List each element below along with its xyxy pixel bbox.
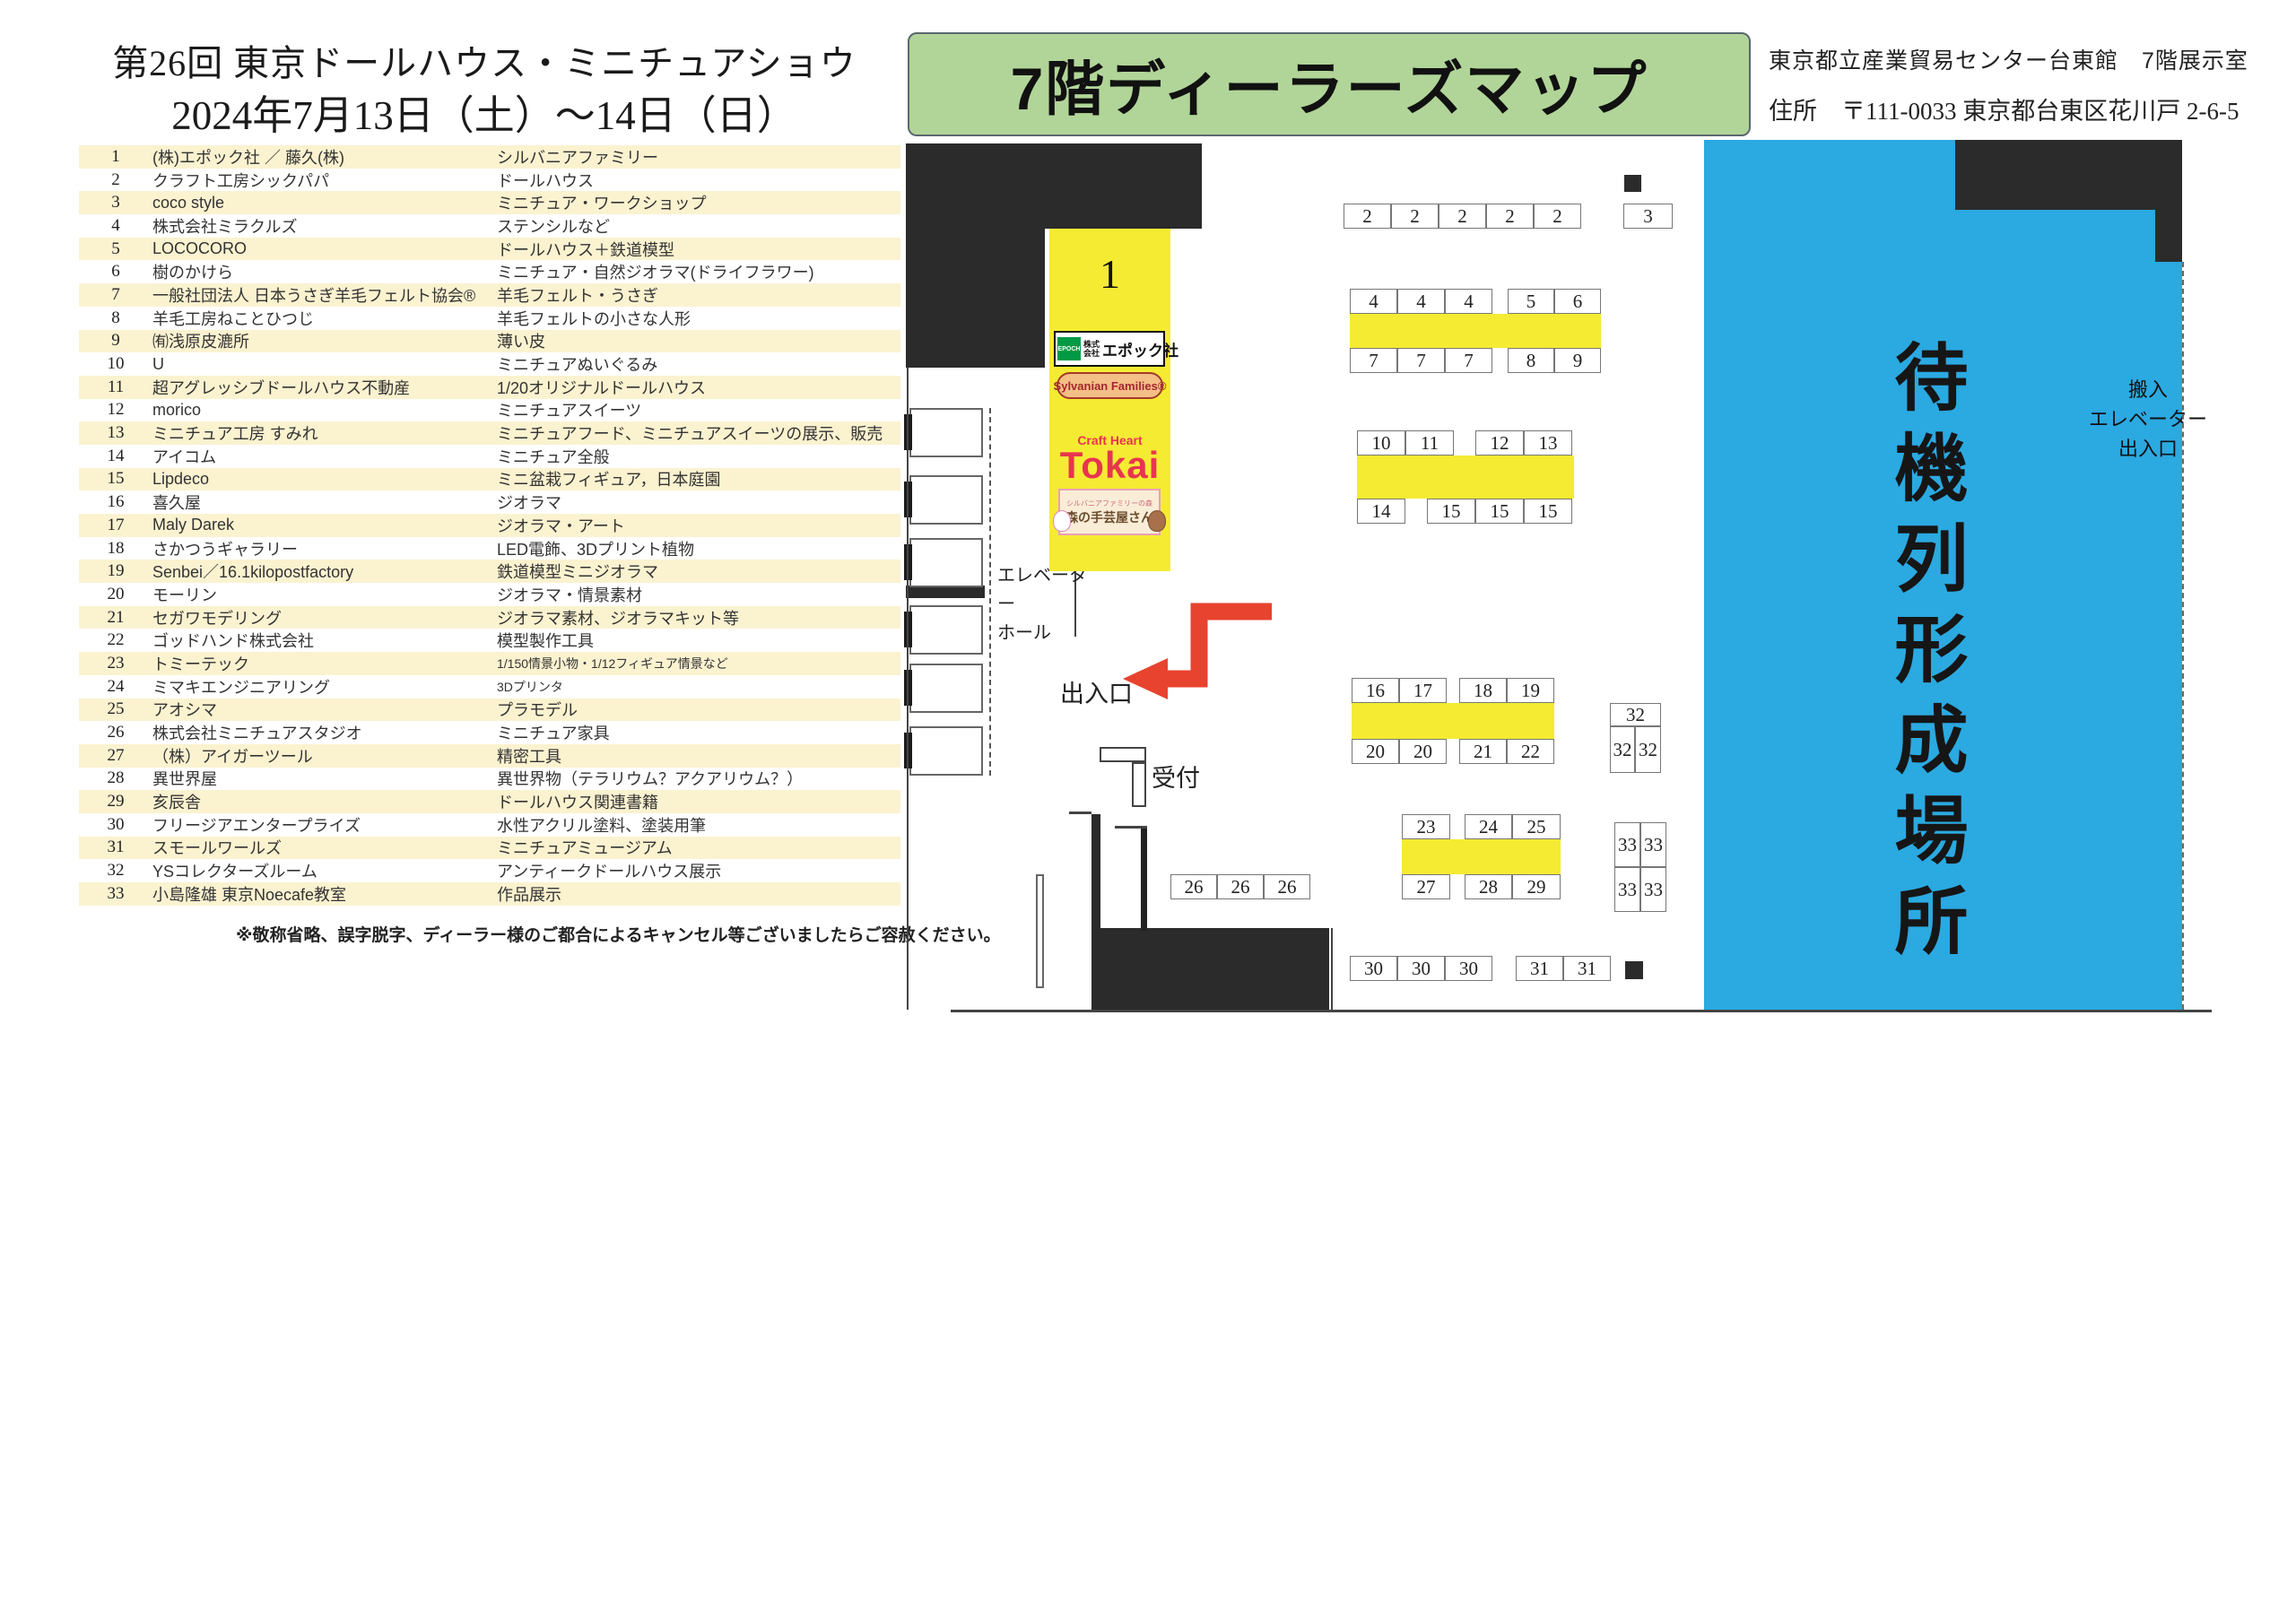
dealer-name: Lipdeco — [152, 470, 497, 489]
dealer-description: ドールハウス＋鉄道模型 — [497, 238, 900, 261]
elevator-box — [909, 538, 983, 587]
table-row: 33 小島隆雄 東京Noecafe教室 作品展示 — [79, 882, 900, 906]
booth-cell-8: 8 — [1508, 348, 1554, 373]
blue-zone-right-dashed-line — [2182, 262, 2184, 1010]
tokai-banner: シルバニアファミリーの森 森の手芸屋さん — [1058, 489, 1161, 535]
elevator-door-icon — [904, 670, 912, 706]
booth-cell-10: 10 — [1357, 430, 1405, 456]
dealer-description: 鉄道模型ミニジオラマ — [497, 560, 900, 583]
dealer-name: 超アグレッシブドールハウス不動産 — [152, 376, 497, 399]
dealer-number: 18 — [79, 539, 152, 559]
dealer-description: ミニチュアミュージアム — [497, 836, 900, 859]
door-stub-line — [1069, 811, 1091, 814]
table-row: 4 株式会社ミラクルズ ステンシルなど — [79, 214, 900, 238]
table-row: 27 （株）アイガーツール 精密工具 — [79, 744, 900, 768]
booth-cell-26: 26 — [1264, 874, 1310, 899]
dealer-number: 31 — [79, 838, 152, 857]
dealer-name: morico — [152, 401, 497, 420]
dealer-number: 32 — [79, 861, 152, 881]
disclaimer-note: ※敬称省略、誤字脱字、ディーラー様のご都合によるキャンセル等ございましたらご容赦… — [236, 922, 1001, 946]
booth-yellow-strip — [1357, 456, 1574, 499]
entrance-arrow-icon — [1112, 594, 1327, 710]
booth-cell-2: 2 — [1439, 204, 1486, 229]
dealer-description: 精密工具 — [497, 744, 900, 768]
booth-cell-5: 5 — [1508, 289, 1554, 314]
booth-cell-7: 7 — [1350, 348, 1397, 373]
dealer-number: 33 — [79, 884, 152, 904]
elevator-door-icon — [904, 482, 912, 517]
epoch-mark-icon: EPOCH — [1057, 337, 1081, 360]
booth-cell-2: 2 — [1486, 204, 1534, 229]
dealer-description: ミニチュア・自然ジオラマ(ドライフラワー) — [497, 260, 900, 283]
dealer-number: 28 — [79, 768, 152, 788]
dealer-name: 異世界屋 — [152, 767, 497, 790]
dealer-name: 小島隆雄 東京Noecafe教室 — [152, 882, 497, 906]
booth-cell-4: 4 — [1350, 289, 1397, 314]
dealer-description: 水性アクリル塗料、塗装用筆 — [497, 813, 900, 837]
reception-desk-side — [1132, 762, 1146, 807]
epoch-kabushiki: 株式 会社 — [1083, 340, 1100, 358]
booth-cell-2: 2 — [1391, 204, 1439, 229]
dealer-name: 樹のかけら — [152, 260, 497, 283]
carry-in-line3: 出入口 — [2081, 434, 2215, 464]
dealer-name: coco style — [152, 194, 497, 213]
table-row: 15 Lipdeco ミニ盆栽フィギュア，日本庭園 — [79, 468, 900, 491]
table-row: 2 クラフト工房シックパパ ドールハウス — [79, 169, 900, 192]
booth-cell-2: 2 — [1534, 204, 1581, 229]
elevator-door-icon — [904, 612, 912, 647]
booth-cell-21: 21 — [1459, 739, 1507, 764]
booth-cell-29: 29 — [1512, 874, 1561, 899]
booth-cell-24: 24 — [1465, 814, 1512, 839]
dealer-number: 26 — [79, 723, 152, 742]
table-row: 24 ミマキエンジニアリング 3Dプリンタ — [79, 675, 900, 699]
dealer-name: アイコム — [152, 445, 497, 468]
dealer-table: 1 (株)エポック社 ／ 藤久(株) シルバニアファミリー 2 クラフト工房シッ… — [79, 145, 900, 906]
tokai-logo: Craft Heart Tokai — [1049, 433, 1170, 483]
dealer-name: ミマキエンジニアリング — [152, 675, 497, 699]
dealer-description: シルバニアファミリー — [497, 145, 900, 169]
table-row: 7 一般社団法人 日本うさぎ羊毛フェルト協会® 羊毛フェルト・うさぎ — [79, 283, 900, 307]
dealer-description: 羊毛フェルトの小さな人形 — [497, 307, 900, 330]
carry-in-elevator-label: 搬入 エレベーター 出入口 — [2081, 375, 2215, 464]
dealer-number: 10 — [79, 354, 152, 374]
booth-cell-22: 22 — [1507, 739, 1554, 764]
reception-label: 受付 — [1152, 759, 1200, 794]
dealer-description: アンティークドールハウス展示 — [497, 859, 900, 882]
dealer-name: 株式会社ミニチュアスタジオ — [152, 721, 497, 744]
dealer-number: 29 — [79, 792, 152, 811]
booth-cell-30: 30 — [1445, 956, 1492, 981]
dealer-name: LOCOCORO — [152, 239, 497, 258]
dealer-description: ミニ盆栽フィギュア，日本庭園 — [497, 467, 900, 490]
dealer-number: 21 — [79, 608, 152, 628]
tokai-wordmark: Tokai — [1049, 447, 1170, 483]
dealer-number: 6 — [79, 262, 152, 282]
epoch-kabushiki-1: 株式 — [1083, 340, 1100, 349]
dealer-description: 3Dプリンタ — [497, 678, 900, 696]
table-row: 12 morico ミニチュアスイーツ — [79, 399, 900, 422]
tokai-craft-heart: Craft Heart — [1049, 433, 1170, 447]
booth1-lower-wall-line — [1074, 569, 1076, 637]
dealer-name: 亥辰舎 — [152, 790, 497, 813]
elevator-hall-line2: ホール — [997, 619, 1096, 647]
epoch-logo: EPOCH 株式 会社 エポック社 — [1054, 331, 1165, 367]
map-title: 7階ディーラーズマップ — [1011, 41, 1648, 127]
dealer-name: トミーテック — [152, 652, 497, 675]
table-row: 10 U ミニチュアぬいぐるみ — [79, 352, 900, 376]
show-date: 2024年7月13日（土）～14日（日） — [0, 82, 969, 141]
dealer-name: スモールワールズ — [152, 836, 497, 859]
pillar — [1036, 874, 1044, 988]
dealer-number: 9 — [79, 331, 152, 351]
booth-yellow-strip — [1402, 839, 1561, 874]
wall-rect — [2155, 210, 2182, 262]
booth-cell-32: 32 — [1610, 726, 1635, 773]
dealer-name: ゴッドハンド株式会社 — [152, 629, 497, 652]
table-row: 11 超アグレッシブドールハウス不動産 1/20オリジナルドールハウス — [79, 376, 900, 399]
wall-rect — [1625, 961, 1643, 979]
sylvanian-families-logo: Sylvanian Families® — [1057, 372, 1163, 399]
booth-cell-26: 26 — [1217, 874, 1264, 899]
table-row: 29 亥辰舎 ドールハウス関連書籍 — [79, 790, 900, 813]
dealer-name: クラフト工房シックパパ — [152, 169, 497, 192]
squirrel-character-icon — [1148, 510, 1166, 532]
dealer-description: 羊毛フェルト・うさぎ — [497, 283, 900, 307]
dealer-description: 模型製作工具 — [497, 629, 900, 652]
table-row: 14 アイコム ミニチュア全般 — [79, 445, 900, 468]
dealer-number: 7 — [79, 285, 152, 305]
table-row: 30 フリージアエンタープライズ 水性アクリル塗料、塗装用筆 — [79, 813, 900, 837]
dealer-number: 22 — [79, 630, 152, 650]
epoch-name: エポック社 — [1102, 338, 1178, 360]
dealer-number: 16 — [79, 492, 152, 512]
dealer-number: 5 — [79, 239, 152, 259]
dealer-name: フリージアエンタープライズ — [152, 813, 497, 837]
elevator-box — [909, 475, 983, 525]
booth-cell-2: 2 — [1344, 204, 1391, 229]
table-row: 8 羊毛工房ねことひつじ 羊毛フェルトの小さな人形 — [79, 307, 900, 330]
dealer-description: 1/150情景小物・1/12フィギュア情景など — [497, 655, 900, 673]
booth-cell-7: 7 — [1397, 348, 1445, 373]
elevator-door-icon — [904, 414, 912, 450]
dealer-description: ジオラマ — [497, 490, 900, 514]
dealer-name: Senbei／16.1kilopostfactory — [152, 560, 497, 583]
table-row: 23 トミーテック 1/150情景小物・1/12フィギュア情景など — [79, 652, 900, 675]
dealer-number: 24 — [79, 677, 152, 697]
booth-cell-7: 7 — [1445, 348, 1492, 373]
waiting-area-label: 待機列形成場所 — [1871, 339, 1978, 985]
map-left-wall-line — [907, 368, 909, 1010]
elevator-box — [909, 726, 983, 776]
table-row: 1 (株)エポック社 ／ 藤久(株) シルバニアファミリー — [79, 145, 900, 169]
booth-cell-25: 25 — [1512, 814, 1561, 839]
booth-cell-33: 33 — [1640, 867, 1666, 912]
table-row: 22 ゴッドハンド株式会社 模型製作工具 — [79, 629, 900, 652]
epoch-kabushiki-2: 会社 — [1083, 349, 1100, 358]
table-row: 5 LOCOCORO ドールハウス＋鉄道模型 — [79, 238, 900, 261]
bunny-character-icon — [1053, 510, 1071, 532]
dealer-number: 14 — [79, 447, 152, 466]
reception-desk-top — [1100, 747, 1146, 762]
booth-1-number: 1 — [1049, 250, 1170, 298]
elevator-box — [909, 408, 983, 457]
carry-in-line1: 搬入 — [2081, 375, 2215, 404]
booth-cell-14: 14 — [1357, 499, 1405, 524]
dealer-description: ジオラマ・情景素材 — [497, 583, 900, 606]
dealer-number: 25 — [79, 699, 152, 719]
reception-wall-h — [1115, 826, 1147, 829]
table-row: 16 喜久屋 ジオラマ — [79, 490, 900, 514]
dealer-description: ドールハウス — [497, 169, 900, 192]
map-bottom-wall-line — [951, 1010, 2212, 1012]
dealer-name: 株式会社ミラクルズ — [152, 214, 497, 238]
booth-yellow-strip — [1350, 314, 1601, 348]
wall-rect — [1955, 140, 2182, 210]
table-row: 28 異世界屋 異世界物（テラリウム？アクアリウム？） — [79, 768, 900, 791]
dealer-name: 喜久屋 — [152, 490, 497, 514]
table-row: 21 セガワモデリング ジオラマ素材、ジオラマキット等 — [79, 606, 900, 629]
dealer-name: 羊毛工房ねことひつじ — [152, 307, 497, 330]
table-row: 17 Maly Darek ジオラマ・アート — [79, 514, 900, 537]
booth-cell-26: 26 — [1170, 874, 1217, 899]
booth-cell-31: 31 — [1563, 956, 1611, 981]
booth-cell-9: 9 — [1554, 348, 1601, 373]
booth-cell-16: 16 — [1352, 678, 1399, 703]
booth-cell-18: 18 — [1459, 678, 1507, 703]
dealer-number: 2 — [79, 170, 152, 190]
booth-cell-11: 11 — [1405, 430, 1454, 456]
table-row: 31 スモールワールズ ミニチュアミュージアム — [79, 837, 900, 860]
table-row: 13 ミニチュア工房 すみれ ミニチュアフード、ミニチュアスイーツの展示、販売 — [79, 421, 900, 445]
booth-cell-33: 33 — [1614, 822, 1640, 867]
dealer-number: 8 — [79, 308, 152, 328]
booth-cell-20: 20 — [1399, 739, 1447, 764]
dealer-description: ステンシルなど — [497, 214, 900, 238]
booth-cell-12: 12 — [1475, 430, 1524, 456]
booth-cell-32: 32 — [1610, 703, 1661, 726]
table-row: 32 YSコレクターズルーム アンティークドールハウス展示 — [79, 859, 900, 882]
dealer-description: ジオラマ・アート — [497, 514, 900, 537]
booth-cell-20: 20 — [1352, 739, 1399, 764]
dealer-description: ミニチュアフード、ミニチュアスイーツの展示、販売 — [497, 421, 900, 445]
table-row: 25 アオシマ プラモデル — [79, 699, 900, 722]
wall-rect — [906, 143, 1202, 229]
dealer-number: 13 — [79, 423, 152, 443]
wall-rect — [1624, 175, 1641, 192]
booth-cell-30: 30 — [1397, 956, 1445, 981]
dealer-description: LED電飾、3Dプリント植物 — [497, 537, 900, 560]
carry-in-line2: エレベーター — [2081, 404, 2215, 434]
dealer-name: モーリン — [152, 583, 497, 606]
dealer-name: (株)エポック社 ／ 藤久(株) — [152, 145, 497, 169]
dealer-name: U — [152, 355, 497, 374]
show-title: 第26回 東京ドールハウス・ミニチュアショウ — [0, 34, 969, 86]
dealer-number: 30 — [79, 815, 152, 835]
dealer-description: ミニチュアスイーツ — [497, 398, 900, 421]
booth-cell-15: 15 — [1427, 499, 1475, 524]
booth-yellow-strip — [1352, 703, 1554, 739]
dealer-name: Maly Darek — [152, 516, 497, 534]
wall-rect — [1091, 814, 1100, 931]
dealer-description: ミニチュア全般 — [497, 445, 900, 468]
dealer-description: ミニチュアぬいぐるみ — [497, 352, 900, 376]
dealer-number: 23 — [79, 654, 152, 673]
dealer-name: ㈲浅原皮漉所 — [152, 329, 497, 352]
dealer-name: アオシマ — [152, 698, 497, 721]
elevator-hall-label: エレベーター ホール — [997, 561, 1096, 647]
dealer-description: ドールハウス関連書籍 — [497, 790, 900, 813]
booth-cell-17: 17 — [1399, 678, 1447, 703]
booth-1-epoch: 1 EPOCH 株式 会社 エポック社 Sylvanian Families® … — [1049, 229, 1170, 571]
dealer-number: 3 — [79, 193, 152, 213]
wall-rect — [906, 586, 985, 598]
elevator-box — [909, 664, 983, 713]
dealer-number: 12 — [79, 400, 152, 420]
dealer-name: さかつうギャラリー — [152, 537, 497, 560]
booth-cell-28: 28 — [1465, 874, 1512, 899]
dealer-name: 一般社団法人 日本うさぎ羊毛フェルト協会® — [152, 283, 497, 307]
elevator-box — [909, 605, 983, 655]
elevator-door-icon — [904, 733, 912, 768]
booth-cell-13: 13 — [1524, 430, 1572, 456]
booth-cell-19: 19 — [1507, 678, 1554, 703]
dealer-number: 19 — [79, 561, 152, 581]
dealer-number: 4 — [79, 216, 152, 236]
booth-cell-30: 30 — [1350, 956, 1397, 981]
tokai-banner-subtext: シルバニアファミリーの森 — [1066, 499, 1152, 508]
dealer-number: 1 — [79, 147, 152, 167]
wall-rect — [906, 229, 1045, 368]
booth-cell-15: 15 — [1524, 499, 1572, 524]
elevator-door-icon — [904, 544, 912, 580]
dealer-description: 異世界物（テラリウム？アクアリウム？） — [497, 767, 900, 790]
booth-cell-3: 3 — [1623, 204, 1673, 229]
dealer-name: （株）アイガーツール — [152, 744, 497, 768]
dealer-description: プラモデル — [497, 698, 900, 721]
tokai-banner-name: 森の手芸屋さん — [1065, 508, 1153, 526]
venue-address: 住所 〒111-0033 東京都台東区花川戸 2-6-5 — [1769, 91, 2239, 126]
dealer-description: ミニチュア・ワークショップ — [497, 191, 900, 214]
reception-wall-v — [1141, 829, 1147, 931]
table-row: 19 Senbei／16.1kilopostfactory 鉄道模型ミニジオラマ — [79, 560, 900, 583]
dealer-description: 1/20オリジナルドールハウス — [497, 376, 900, 399]
table-row: 18 さかつうギャラリー LED電飾、3Dプリント植物 — [79, 537, 900, 560]
booth-cell-23: 23 — [1402, 814, 1450, 839]
table-row: 3 coco style ミニチュア・ワークショップ — [79, 191, 900, 214]
dealer-description: 薄い皮 — [497, 329, 900, 352]
dealer-name: セガワモデリング — [152, 606, 497, 629]
dealer-number: 27 — [79, 746, 152, 766]
inner-wall-line — [1331, 928, 1333, 1010]
dealer-description: ジオラマ素材、ジオラマキット等 — [497, 606, 900, 629]
table-row: 26 株式会社ミニチュアスタジオ ミニチュア家具 — [79, 721, 900, 744]
table-row: 9 ㈲浅原皮漉所 薄い皮 — [79, 330, 900, 353]
booth-cell-33: 33 — [1614, 867, 1640, 912]
elevator-hall-dashed-line — [989, 408, 991, 776]
table-row: 20 モーリン ジオラマ・情景素材 — [79, 583, 900, 606]
booth-cell-27: 27 — [1402, 874, 1450, 899]
map-title-banner: 7階ディーラーズマップ — [908, 32, 1751, 136]
dealer-number: 17 — [79, 516, 152, 535]
dealer-number: 20 — [79, 585, 152, 604]
table-row: 6 樹のかけら ミニチュア・自然ジオラマ(ドライフラワー) — [79, 260, 900, 283]
venue-name: 東京都立産業貿易センター台東館 7階展示室 — [1769, 43, 2248, 75]
booth-cell-6: 6 — [1554, 289, 1601, 314]
waiting-area-zone — [1704, 140, 2182, 1011]
dealer-number: 15 — [79, 469, 152, 489]
dealer-name: ミニチュア工房 すみれ — [152, 421, 497, 445]
booth-cell-15: 15 — [1475, 499, 1524, 524]
booth-cell-31: 31 — [1516, 956, 1563, 981]
dealer-number: 11 — [79, 378, 152, 397]
entrance-label: 出入口 — [1060, 674, 1133, 709]
elevator-hall-line1: エレベーター — [997, 561, 1096, 619]
booth-cell-4: 4 — [1445, 289, 1492, 314]
booth-cell-32: 32 — [1635, 726, 1661, 773]
dealer-name: YSコレクターズルーム — [152, 859, 497, 882]
dealer-description: 作品展示 — [497, 882, 900, 906]
booth-cell-33: 33 — [1640, 822, 1666, 867]
wall-rect — [1091, 928, 1329, 1010]
booth-cell-4: 4 — [1397, 289, 1445, 314]
dealer-description: ミニチュア家具 — [497, 721, 900, 744]
